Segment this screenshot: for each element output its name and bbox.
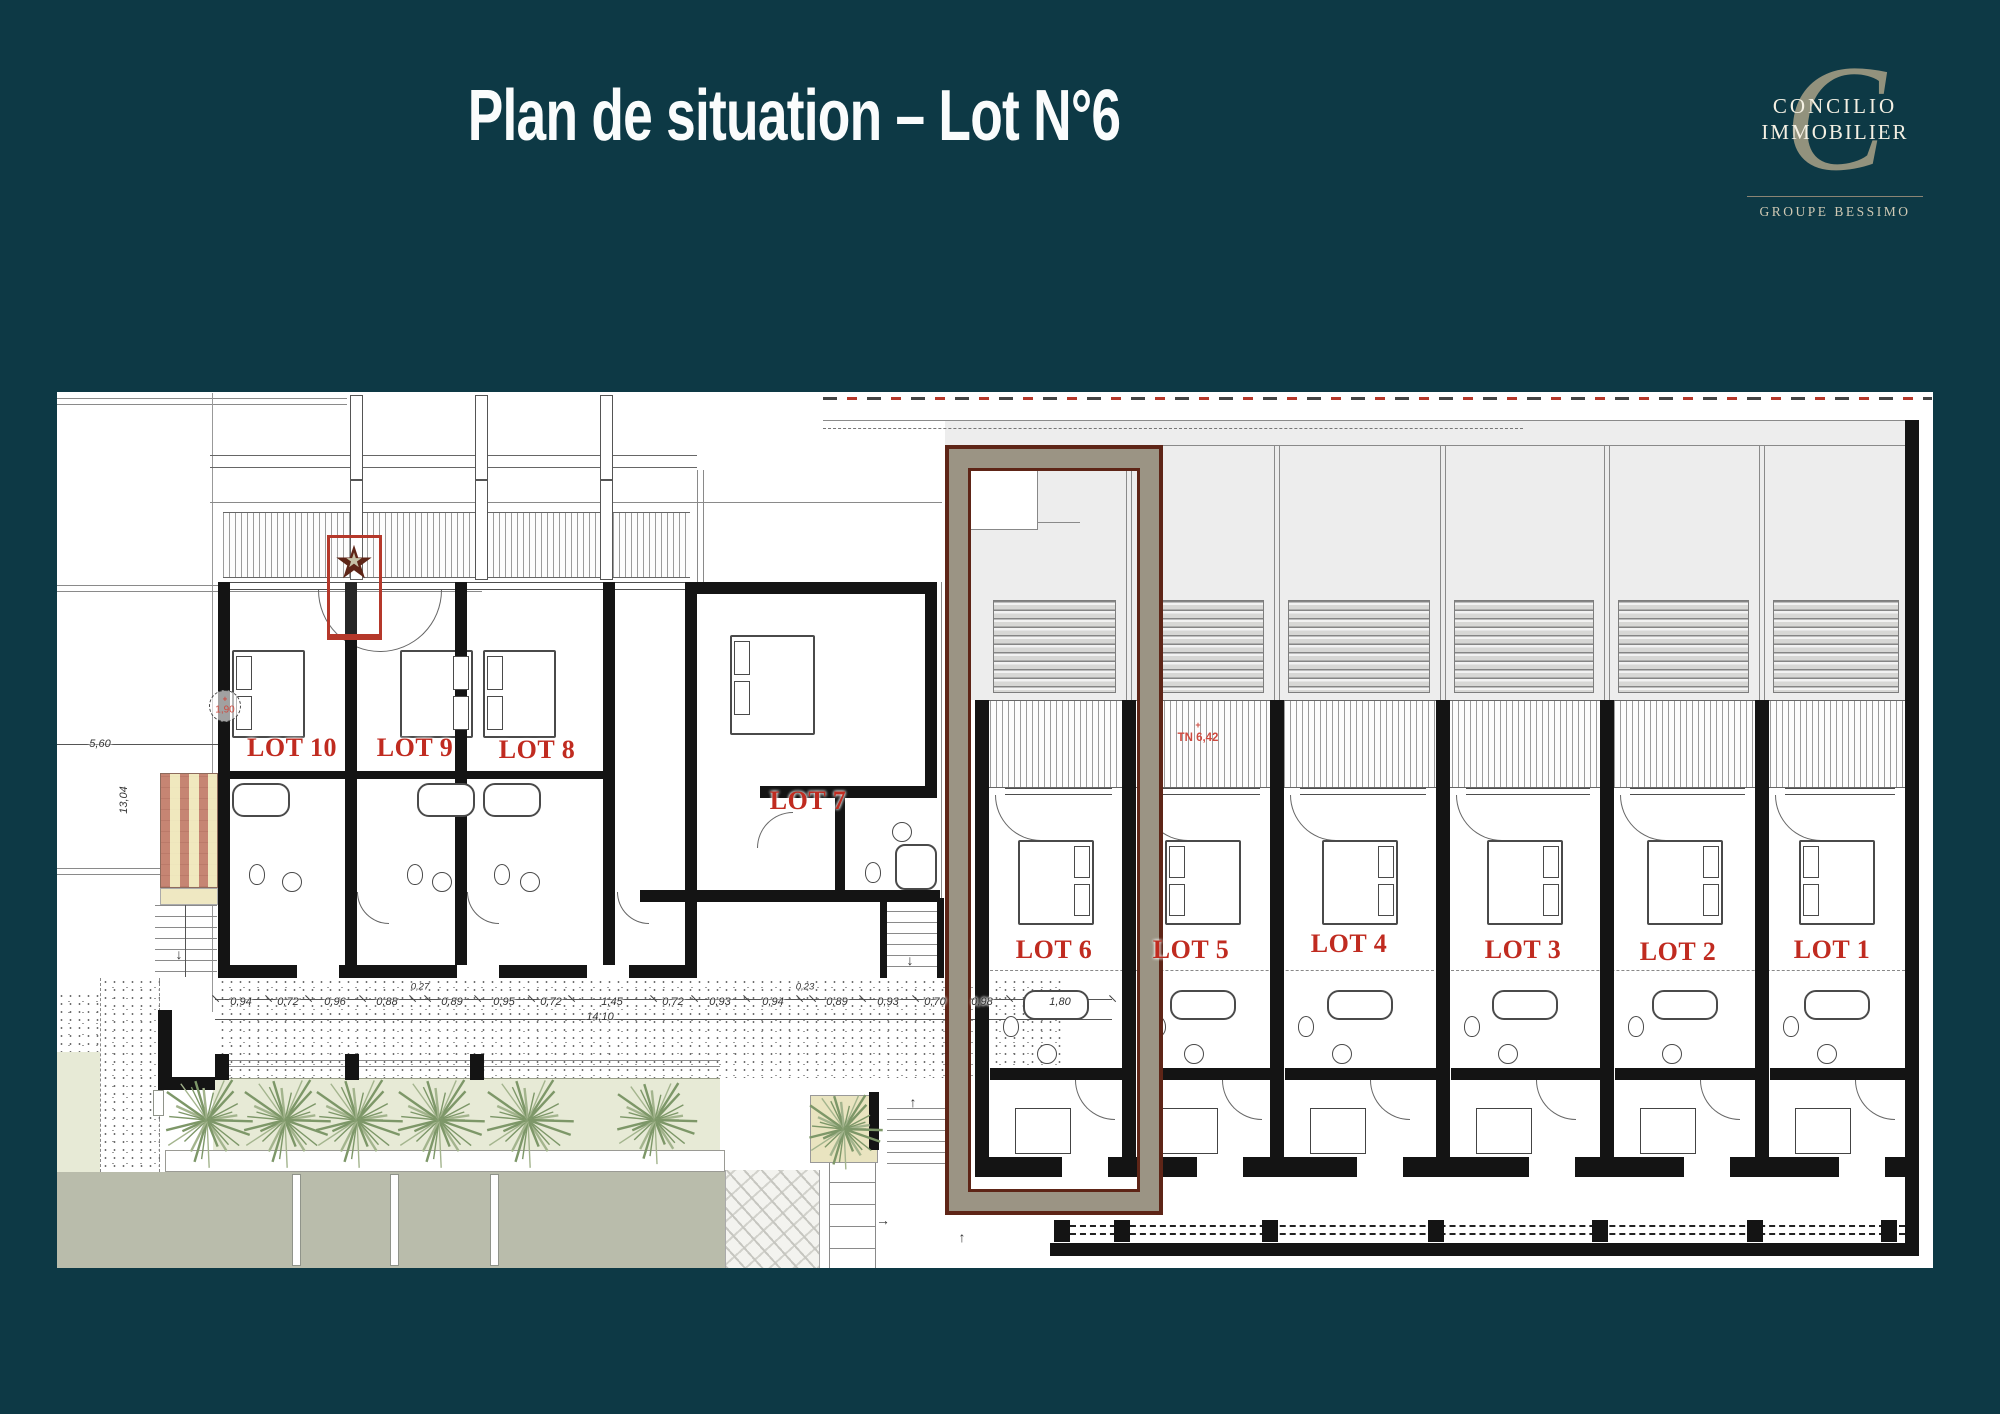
dimension-label: 0,98 xyxy=(971,996,992,1008)
plant-icon xyxy=(800,1085,888,1173)
plan-element xyxy=(887,944,937,945)
door-arc xyxy=(1222,1080,1262,1120)
window-sill xyxy=(1152,788,1260,795)
slide: Plan de situation – Lot N°6 C CONCILIO I… xyxy=(0,0,2000,1414)
dimension-label: 0,72 xyxy=(540,996,561,1008)
lot6-highlight-frame-inner xyxy=(968,468,1140,1192)
dimension-label: 5,60 xyxy=(89,738,110,750)
wall xyxy=(218,582,230,978)
wall xyxy=(880,898,887,978)
plan-element xyxy=(887,1130,945,1131)
dimension-label: 14,10 xyxy=(586,1011,614,1023)
plan-element xyxy=(1764,445,1765,700)
path-arrow: ↑ xyxy=(959,1229,966,1245)
bed-pillow xyxy=(1703,846,1719,878)
plant-icon xyxy=(476,1068,580,1172)
bed-pillow xyxy=(1378,846,1394,878)
plan-element xyxy=(1060,1233,1905,1235)
plan-element xyxy=(57,398,347,399)
bed-pillow xyxy=(1378,884,1394,916)
bathtub xyxy=(232,783,290,817)
railing-post xyxy=(1054,1220,1070,1242)
level-annotation: TN 6,42 xyxy=(1178,732,1219,744)
bed-pillow xyxy=(453,656,469,690)
lot-label-lot-8: LOT 8 xyxy=(499,735,575,765)
lot-label-lot-4: LOT 4 xyxy=(1311,929,1387,959)
plan-element xyxy=(823,428,1523,430)
sink xyxy=(892,822,912,842)
wall xyxy=(455,582,467,978)
plan-element xyxy=(297,965,339,978)
dimension-label: 0,94 xyxy=(230,996,251,1008)
dimension-label: 0,89 xyxy=(826,996,847,1008)
plan-element xyxy=(155,971,217,972)
wall xyxy=(467,771,603,779)
plan-element xyxy=(155,927,217,928)
wall xyxy=(1770,1068,1918,1080)
plan-element xyxy=(1279,445,1280,700)
plan-element xyxy=(155,960,217,961)
wall xyxy=(230,771,345,779)
sink xyxy=(1184,1044,1204,1064)
dimension-label: 0,72 xyxy=(277,996,298,1008)
plan-element xyxy=(160,888,218,905)
plan-element xyxy=(829,1248,875,1249)
plan-element xyxy=(1759,445,1760,700)
plan-element xyxy=(210,502,942,503)
plan-element xyxy=(1357,1157,1403,1177)
bed-pillow xyxy=(1543,846,1559,878)
level-mark: + xyxy=(223,695,228,704)
toilet xyxy=(249,864,265,885)
bathtub xyxy=(895,844,937,890)
wall xyxy=(697,582,937,594)
wall xyxy=(345,582,357,978)
plan-element xyxy=(457,965,499,978)
toilet xyxy=(494,864,510,885)
wall xyxy=(1600,700,1614,1177)
terrace-hatch xyxy=(223,512,690,578)
bed-pillow xyxy=(734,641,750,675)
bathtub xyxy=(483,783,541,817)
plan-element xyxy=(887,933,937,934)
bathtub xyxy=(417,783,475,817)
plan-element xyxy=(829,1182,875,1183)
road-post xyxy=(292,1174,301,1266)
plan-element xyxy=(887,1163,945,1164)
bed-pillow xyxy=(453,696,469,730)
toilet xyxy=(1298,1016,1314,1037)
plan-element xyxy=(887,1119,945,1120)
logo-group-name: GROUPE BESSIMO xyxy=(1700,204,1970,220)
bathtub xyxy=(1327,990,1393,1020)
wall xyxy=(1615,1068,1768,1080)
sink xyxy=(1817,1044,1837,1064)
dimension-label: 0,23 xyxy=(796,982,815,993)
roof-louvres xyxy=(1773,600,1899,693)
railing-post xyxy=(1428,1220,1444,1242)
sink xyxy=(432,872,452,892)
sink xyxy=(520,872,540,892)
window-sill xyxy=(1785,788,1895,795)
closet xyxy=(1310,1108,1366,1154)
level-annotation: 1,90 xyxy=(215,705,234,716)
window-sill xyxy=(1466,788,1590,795)
dimension-label: 13,04 xyxy=(118,786,130,814)
wall xyxy=(1451,1068,1613,1080)
closet xyxy=(1795,1108,1851,1154)
dimension-label: 0,89 xyxy=(441,996,462,1008)
bed-pillow xyxy=(487,696,503,730)
cobble-path xyxy=(725,1170,820,1268)
dimension-label: 0,70 xyxy=(924,996,945,1008)
door-arc xyxy=(1700,1080,1740,1120)
dimension-label: 0,72 xyxy=(662,996,683,1008)
plan-element xyxy=(1440,445,1441,700)
page-title: Plan de situation – Lot N°6 xyxy=(353,70,1235,162)
bed-pillow xyxy=(1703,884,1719,916)
dimension-label: 1,80 xyxy=(1049,996,1070,1008)
railing-post xyxy=(1592,1220,1608,1242)
lot-label-lot-7: LOT 7 xyxy=(770,786,846,816)
sink xyxy=(1332,1044,1352,1064)
plan-element xyxy=(215,1060,720,1061)
column xyxy=(475,480,488,580)
dimension-label: 0,94 xyxy=(762,996,783,1008)
plan-element xyxy=(155,938,217,939)
logo-name-line2: IMMOBILIER xyxy=(1700,120,1970,145)
bed-pillow xyxy=(236,656,252,690)
column xyxy=(350,395,363,480)
window-sill xyxy=(1300,788,1426,795)
dimension-label: 0,88 xyxy=(376,996,397,1008)
plan-element xyxy=(215,1066,720,1067)
door-arc xyxy=(1775,795,1821,841)
company-logo: C CONCILIO IMMOBILIER GROUPE BESSIMO xyxy=(1700,28,1970,228)
stair-arrow: ↓ xyxy=(907,952,914,968)
column xyxy=(475,395,488,480)
roof-louvres xyxy=(1288,600,1430,693)
dimension-label: 0,96 xyxy=(324,996,345,1008)
sink xyxy=(1662,1044,1682,1064)
column xyxy=(600,395,613,480)
lot-label-lot-3: LOT 3 xyxy=(1485,935,1561,965)
door-arc xyxy=(357,892,389,924)
road-post xyxy=(390,1174,399,1266)
closet xyxy=(1640,1108,1696,1154)
plan-element xyxy=(587,965,629,978)
roof-louvres xyxy=(1454,600,1594,693)
toilet xyxy=(1464,1016,1480,1037)
plan-element xyxy=(887,1141,945,1142)
bed-pillow xyxy=(734,681,750,715)
lot-label-lot-6: LOT 6 xyxy=(1016,935,1092,965)
door-arc xyxy=(1456,795,1502,841)
plan-element xyxy=(1609,445,1610,700)
plan-element xyxy=(57,404,347,405)
closet xyxy=(1476,1108,1532,1154)
door-arc xyxy=(467,892,499,924)
lot-label-lot-9: LOT 9 xyxy=(377,733,453,763)
logo-divider xyxy=(1747,196,1923,197)
sink xyxy=(1498,1044,1518,1064)
plan-element xyxy=(887,922,937,923)
bathtub xyxy=(1652,990,1718,1020)
path xyxy=(100,978,160,1172)
plan-element xyxy=(829,1226,875,1227)
toilet xyxy=(1783,1016,1799,1037)
wall xyxy=(1050,1243,1919,1256)
path xyxy=(57,992,100,1052)
wall xyxy=(1285,1068,1449,1080)
plan-element xyxy=(1445,445,1446,700)
door-arc xyxy=(757,812,793,848)
star-icon-inner: ★ xyxy=(345,551,363,571)
railing-post xyxy=(1881,1220,1897,1242)
wall xyxy=(640,890,940,902)
plan-element xyxy=(155,905,217,906)
dimension-label: 0,93 xyxy=(709,996,730,1008)
toilet xyxy=(407,864,423,885)
bed-pillow xyxy=(1803,884,1819,916)
toilet xyxy=(865,862,881,883)
bed-pillow xyxy=(1803,846,1819,878)
dimension-label: 0,95 xyxy=(493,996,514,1008)
bed-pillow xyxy=(1169,884,1185,916)
plan-element xyxy=(210,455,697,468)
door-arc xyxy=(1620,795,1666,841)
wall xyxy=(603,582,615,978)
wall xyxy=(357,771,455,779)
plan-element xyxy=(57,744,219,745)
railing-post xyxy=(1747,1220,1763,1242)
roof-tiles xyxy=(160,773,218,888)
roof-louvres xyxy=(1618,600,1749,693)
plan-element xyxy=(1197,1157,1243,1177)
level-mark: + xyxy=(1195,720,1200,730)
column xyxy=(600,480,613,580)
dimension-label: 0,93 xyxy=(877,996,898,1008)
bed-pillow xyxy=(1169,846,1185,878)
plan-element xyxy=(829,1204,875,1205)
plan-element xyxy=(1684,1157,1730,1177)
wall xyxy=(1270,700,1284,1177)
door-arc xyxy=(1855,1080,1895,1120)
plan-element xyxy=(703,470,704,582)
lot-label-lot-10: LOT 10 xyxy=(247,733,337,763)
plan-element xyxy=(697,470,698,582)
bathtub xyxy=(1170,990,1236,1020)
bed-pillow xyxy=(487,656,503,690)
plan-element xyxy=(1839,1157,1885,1177)
lot-label-lot-5: LOT 5 xyxy=(1153,935,1229,965)
plan-element xyxy=(155,949,217,950)
road-post xyxy=(490,1174,499,1266)
dimension-label: 0,27 xyxy=(411,982,430,993)
lot-label-lot-2: LOT 2 xyxy=(1640,937,1716,967)
plan-element xyxy=(1529,1157,1575,1177)
wall xyxy=(1436,700,1450,1177)
door-arc xyxy=(1536,1080,1576,1120)
bathtub xyxy=(1804,990,1870,1020)
dimension-label: 1,45 xyxy=(601,996,622,1008)
wall xyxy=(1905,420,1919,1256)
plan-element xyxy=(823,420,1918,421)
toilet xyxy=(1628,1016,1644,1037)
bathtub xyxy=(1492,990,1558,1020)
plant-icon xyxy=(607,1072,703,1168)
wall xyxy=(685,582,697,978)
lot-label-lot-1: LOT 1 xyxy=(1794,935,1870,965)
plan-element xyxy=(1274,445,1275,700)
stair-arrow: ↓ xyxy=(176,946,183,962)
wall xyxy=(1755,700,1769,1177)
plan-element xyxy=(887,1152,945,1153)
wall xyxy=(925,582,937,790)
railing-post xyxy=(1114,1220,1130,1242)
door-arc xyxy=(1290,795,1336,841)
sink xyxy=(282,872,302,892)
bed-pillow xyxy=(1543,884,1559,916)
boundary-line xyxy=(823,397,1932,400)
plan-element xyxy=(1060,1225,1905,1227)
logo-name-line1: CONCILIO xyxy=(1700,94,1970,119)
plan-element xyxy=(185,905,186,977)
closet xyxy=(1162,1108,1218,1154)
floor-plan: ★★↓↓↑→↑LOT 10LOT 9LOT 8LOT 7LOT 6LOT 5LO… xyxy=(57,392,1933,1268)
plan-element xyxy=(1604,445,1605,700)
wall xyxy=(937,898,944,978)
railing-post xyxy=(1262,1220,1278,1242)
plan-element xyxy=(887,911,937,912)
plan-element xyxy=(155,916,217,917)
stair-arrow: ↑ xyxy=(910,1094,917,1110)
door-arc xyxy=(1370,1080,1410,1120)
window-sill xyxy=(1630,788,1745,795)
path-arrow: → xyxy=(876,1212,890,1228)
